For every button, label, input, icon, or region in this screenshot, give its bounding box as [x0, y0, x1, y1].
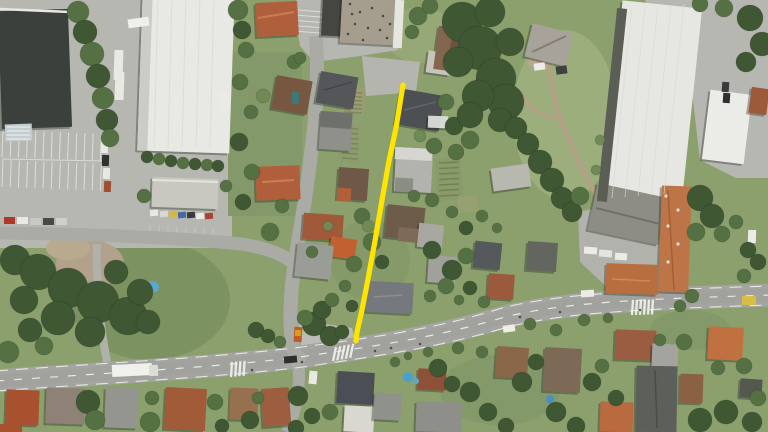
trees-132: [528, 354, 544, 370]
trees-26: [104, 260, 128, 284]
trees-144: [736, 358, 752, 374]
trees-8: [153, 153, 165, 165]
trees-24: [75, 317, 105, 347]
trees-72: [476, 210, 488, 222]
trees-60: [346, 300, 358, 312]
vehicles-33: [723, 93, 731, 103]
house-gray-s3: [104, 387, 138, 428]
house-dark-e9: [473, 241, 503, 271]
trees-13: [212, 160, 224, 172]
truck-trailer-main-road: [112, 363, 153, 377]
house-taupe-s12: [543, 347, 582, 393]
trees-100: [715, 0, 733, 17]
trees-40: [294, 52, 306, 64]
trees-154: [422, 0, 438, 14]
vehicles-5: [160, 211, 168, 218]
house-dark-gable: [316, 71, 359, 109]
trees-147: [452, 342, 464, 354]
trees-103: [700, 204, 724, 228]
trees-9: [165, 155, 177, 167]
aerial-map-viewport[interactable]: [0, 0, 768, 432]
trees-109: [737, 269, 751, 283]
trees-104: [687, 223, 705, 241]
dark-car-road: [284, 355, 298, 363]
vehicles-19: [104, 181, 111, 192]
house-white-s8: [343, 405, 374, 432]
trees-55: [346, 256, 362, 272]
trees-142: [742, 412, 762, 432]
trees-63: [458, 248, 474, 264]
trees-58: [339, 280, 351, 292]
house-red-s6: [261, 387, 292, 427]
trees-49: [335, 325, 349, 339]
trees-94: [571, 187, 589, 205]
trees-151: [578, 314, 590, 326]
building-details-24: [397, 227, 418, 243]
vehicles-18: [103, 168, 110, 179]
trees-32: [85, 410, 105, 430]
trees-110: [595, 135, 605, 145]
trees-138: [676, 334, 692, 350]
trees-115: [145, 391, 159, 405]
trees-152: [603, 313, 613, 323]
trees-65: [463, 281, 477, 295]
trees-134: [567, 417, 585, 432]
trees-121: [304, 408, 320, 424]
trees-74: [438, 94, 454, 110]
trees-51: [261, 329, 275, 343]
trees-131: [512, 372, 532, 392]
trees-126: [429, 359, 447, 377]
white-van-south: [308, 371, 317, 385]
trees-2: [80, 42, 104, 66]
trees-127: [444, 376, 460, 392]
trees-124: [390, 357, 400, 367]
trees-64: [438, 278, 454, 294]
trees-69: [425, 193, 439, 207]
vehicles-15: [56, 218, 67, 225]
trees-3: [86, 64, 110, 88]
house-red-hip-big: [255, 165, 300, 201]
trees-52: [274, 336, 286, 348]
house-brown-hip-1: [271, 75, 312, 115]
trees-7: [141, 151, 153, 163]
teal-car: [292, 92, 300, 104]
trees-143: [750, 390, 766, 406]
trees-77: [414, 130, 426, 142]
trees-99: [736, 52, 756, 72]
trees-11: [189, 158, 201, 170]
white-van-busstop: [581, 290, 594, 298]
trees-76: [426, 138, 442, 154]
trees-133: [546, 402, 566, 422]
house-orange-s15: [707, 326, 744, 361]
trees-141: [714, 400, 738, 424]
trees-158: [220, 180, 232, 192]
trees-85: [496, 28, 524, 56]
trees-95: [461, 131, 479, 149]
vehicles-4: [150, 210, 158, 217]
house-gray-s10: [415, 401, 462, 432]
pools-1: [413, 378, 419, 384]
trees-70: [446, 206, 458, 218]
house-gray-hip-e7: [365, 281, 414, 314]
factory-flat-roof: [340, 0, 399, 45]
trees-125: [404, 352, 412, 360]
trees-44: [323, 221, 333, 231]
pool-round: [403, 372, 413, 382]
trees-111: [591, 165, 601, 175]
truck-east: [220, 92, 230, 112]
trees-101: [692, 0, 708, 12]
vehicles-7: [178, 212, 186, 219]
trees-108: [750, 254, 766, 270]
trees-136: [595, 359, 609, 373]
trees-148: [423, 347, 433, 357]
trees-37: [235, 194, 251, 210]
trailer-b: [115, 72, 125, 100]
house-red-s1: [5, 389, 39, 425]
vehicles-29: [599, 250, 612, 258]
trees-119: [252, 392, 264, 404]
trees-135: [583, 373, 601, 391]
vehicles-32: [722, 82, 730, 92]
house-redbrown-e10: [487, 273, 515, 300]
trees-118: [241, 411, 259, 429]
dark-car-field: [555, 65, 567, 74]
house-red-nw: [255, 1, 299, 37]
trees-83: [443, 47, 473, 77]
trees-68: [454, 295, 464, 305]
vehicles-13: [30, 218, 41, 225]
vehicles-9: [196, 213, 204, 220]
trees-67: [478, 296, 490, 308]
trees-5: [96, 109, 118, 131]
trees-16: [238, 42, 254, 58]
trees-34: [244, 105, 258, 119]
car-right-edge: [748, 230, 756, 243]
trees-36: [244, 164, 260, 180]
buildings-35: [0, 424, 22, 432]
trees-66: [424, 290, 436, 302]
truck-cab: [149, 365, 159, 376]
trees-41: [261, 223, 279, 241]
vehicles-14: [43, 218, 54, 225]
trees-157: [137, 189, 151, 203]
trees-129: [479, 403, 497, 421]
trees-105: [714, 226, 730, 242]
trees-140: [688, 408, 712, 432]
trees-122: [322, 404, 338, 420]
trees-149: [524, 318, 536, 330]
trees-150: [550, 324, 562, 336]
trees-120: [288, 386, 308, 406]
building-orange-long: [658, 186, 692, 293]
aerial-imagery: [0, 0, 768, 432]
trees-97: [737, 5, 763, 31]
trees-48: [297, 310, 313, 326]
trees-73: [492, 223, 502, 233]
production-hall-dark: [0, 9, 72, 129]
vehicles-12: [17, 217, 28, 224]
trees-27: [136, 310, 160, 334]
trees-130: [498, 418, 514, 432]
house-red-s4: [164, 387, 207, 431]
yellow-road-box: [742, 296, 756, 305]
trees-106: [729, 215, 743, 229]
vehicles-28: [584, 247, 597, 255]
trees-117: [215, 419, 229, 432]
trees-137: [608, 390, 624, 406]
trees-10: [177, 157, 189, 169]
pools-3: [546, 395, 554, 403]
trees-84: [475, 0, 505, 27]
driveway-pad: [362, 56, 420, 96]
trees-29: [0, 341, 19, 363]
vehicles-6: [169, 211, 177, 218]
warehouse-west: [137, 0, 235, 154]
trees-145: [711, 361, 725, 375]
trees-30: [35, 337, 53, 355]
trees-139: [654, 334, 666, 346]
trees-128: [460, 382, 480, 402]
vehicles-30: [615, 253, 627, 261]
trees-146: [476, 346, 488, 358]
annex-gray-s14: [652, 344, 679, 368]
trees-33: [232, 74, 248, 90]
trees-116: [207, 394, 223, 410]
garden-plots-6: [457, 195, 478, 212]
trees-22: [41, 301, 75, 335]
trees-62: [442, 260, 462, 280]
trees-86: [457, 102, 483, 128]
trees-113: [674, 300, 686, 312]
trees-114: [140, 412, 160, 432]
vehicles-17: [102, 155, 109, 166]
vehicles-8: [187, 212, 195, 219]
trees-155: [405, 25, 419, 39]
trees-14: [228, 0, 248, 20]
vehicles-11: [4, 217, 15, 224]
building-details-19: [337, 188, 352, 202]
vehicles-27: [295, 330, 301, 336]
house-e11: [526, 241, 558, 272]
shed-brown-s17: [680, 374, 704, 404]
trees-56: [375, 255, 389, 269]
trees-61: [423, 241, 441, 259]
trees-71: [459, 221, 473, 235]
trees-4: [92, 87, 114, 109]
trees-42: [275, 199, 289, 213]
building-details-18: [319, 111, 352, 129]
trees-43: [306, 246, 318, 258]
trees-23: [10, 286, 38, 314]
trees-12: [201, 159, 213, 171]
vehicles-10: [205, 213, 213, 220]
trees-35: [230, 133, 248, 151]
trees-15: [233, 21, 251, 39]
house-slate-s7: [336, 371, 375, 405]
trees-156: [408, 190, 420, 202]
trees-1: [73, 20, 97, 44]
trees-96: [448, 144, 464, 160]
trees-6: [101, 129, 119, 147]
trees-112: [685, 289, 699, 303]
trees-123: [288, 420, 304, 432]
trees-57: [362, 220, 374, 232]
annex-gray-s8b: [373, 392, 401, 420]
trees-25: [127, 279, 153, 305]
trees-59: [325, 293, 339, 307]
building-details-23: [395, 178, 414, 193]
trees-38: [256, 89, 270, 103]
